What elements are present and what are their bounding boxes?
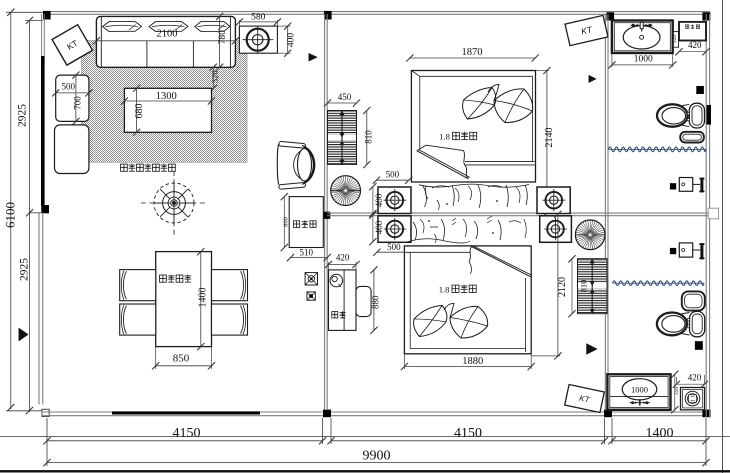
svg-text:680: 680 (134, 104, 145, 119)
svg-text:850: 850 (173, 352, 190, 364)
svg-text:400: 400 (374, 193, 384, 207)
svg-text:9900: 9900 (363, 449, 391, 464)
svg-text:4150: 4150 (173, 426, 201, 441)
svg-text:2140: 2140 (544, 128, 555, 148)
svg-text:350: 350 (674, 387, 680, 396)
svg-text:800: 800 (283, 217, 290, 227)
svg-text:6100: 6100 (3, 202, 18, 228)
svg-text:320: 320 (209, 70, 219, 83)
svg-text:1000: 1000 (634, 54, 653, 64)
svg-text:1.8: 1.8 (439, 132, 450, 142)
svg-text:1400: 1400 (198, 288, 209, 308)
svg-text:1880: 1880 (462, 356, 483, 367)
svg-text:420: 420 (336, 252, 350, 262)
svg-text:2925: 2925 (19, 258, 31, 281)
svg-text:1300: 1300 (156, 91, 177, 102)
svg-text:450: 450 (338, 92, 352, 102)
svg-text:1.8: 1.8 (439, 284, 450, 294)
svg-text:810: 810 (363, 130, 373, 144)
svg-text:420: 420 (688, 40, 702, 50)
svg-text:420: 420 (688, 373, 702, 383)
svg-text:4150: 4150 (454, 426, 482, 441)
svg-text:500: 500 (62, 81, 76, 91)
svg-text:1400: 1400 (646, 426, 674, 441)
svg-text:1000: 1000 (631, 384, 648, 394)
svg-text:500: 500 (386, 169, 400, 179)
svg-text:1870: 1870 (462, 47, 483, 58)
svg-text:400: 400 (374, 220, 384, 234)
svg-text:2925: 2925 (17, 104, 29, 127)
svg-text:400: 400 (286, 33, 296, 48)
svg-text:510: 510 (299, 247, 313, 257)
svg-text:500: 500 (387, 242, 401, 252)
svg-text:2100: 2100 (157, 29, 178, 40)
svg-text:520: 520 (672, 35, 678, 44)
svg-text:2120: 2120 (557, 277, 568, 297)
svg-text:580: 580 (251, 12, 266, 22)
svg-text:700: 700 (72, 96, 82, 110)
svg-text:810: 810 (579, 280, 589, 293)
svg-text:780: 780 (218, 30, 228, 45)
svg-text:880: 880 (370, 295, 380, 309)
